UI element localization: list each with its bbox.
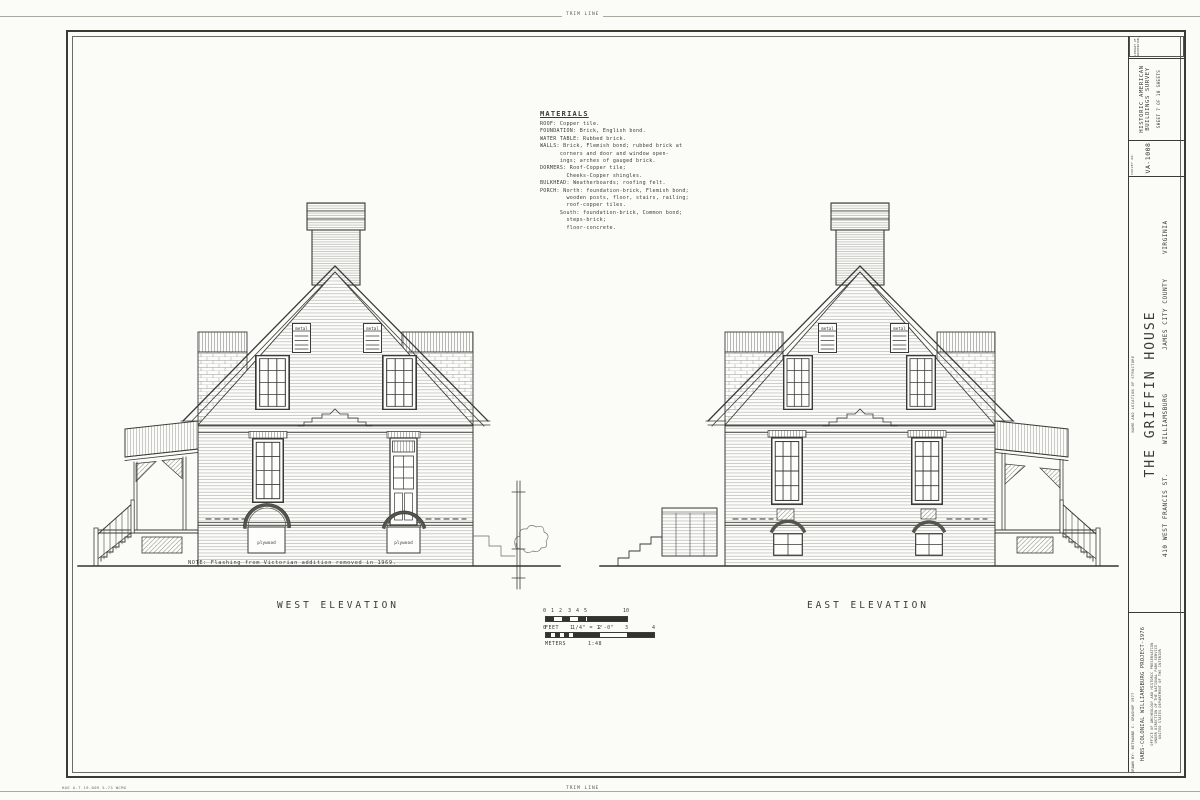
materials-line: Cheeks-Copper shingles. [540, 173, 690, 180]
east-main-wall [725, 425, 995, 566]
west-lintel-window [249, 432, 287, 439]
east-window-first-left [772, 438, 803, 504]
east-wall-vent-left [777, 509, 794, 520]
survey-no-band: SURVEY NO. VA-1008 [1129, 140, 1184, 176]
west-plywood-label-left: plywood [257, 540, 276, 546]
materials-line: roof-copper tiles. [540, 202, 690, 209]
materials-title: MATERIALS [540, 110, 690, 118]
east-bulkhead [618, 508, 717, 566]
meters-scale-ratio: 1:48 [588, 641, 602, 647]
credits-band: DRAWN BY: BETHANNE C. GRASHOF 1977 HABS-… [1129, 612, 1184, 776]
materials-line: WATER TABLE: Rubbed brick. [540, 136, 690, 143]
west-elevation-label: WEST ELEVATION [258, 600, 418, 611]
office-line3: UNITED STATES DEPARTMENT OF THE INTERIOR [1158, 612, 1162, 776]
materials-line: corners and door and window open- [540, 151, 690, 158]
materials-line: steps-brick; [540, 217, 690, 224]
west-elevation-drawing: metal metal plywood [78, 203, 560, 589]
feet-tick: 0 [543, 608, 546, 614]
feet-tick: 3 [568, 608, 571, 614]
name-caption: NAME AND LOCATION OF STRUCTURE [1131, 176, 1135, 612]
materials-line: ings; arches of gauged brick. [540, 158, 690, 165]
name-location-band: NAME AND LOCATION OF STRUCTURE THE GRIFF… [1129, 176, 1184, 612]
feet-tick: 2 [559, 608, 562, 614]
meters-tick: 0 [543, 625, 546, 631]
feet-scale-bar [545, 616, 628, 622]
meters-tick: 2 [598, 625, 601, 631]
library-box: LIBRARY OF CONGRESS WASHINGTON, D.C. [1129, 36, 1184, 57]
survey-name-line2: BUILDINGS SURVEY [1145, 58, 1151, 140]
survey-name-band: HISTORIC AMERICAN BUILDINGS SURVEY SHEET… [1129, 58, 1184, 140]
materials-line: floor-concrete. [540, 225, 690, 232]
library-line2: WASHINGTON, D.C. [1137, 37, 1140, 56]
east-window-first-right [912, 438, 943, 504]
east-lintel-left [768, 431, 806, 438]
feet-scale-label: FEET [545, 625, 559, 631]
meters-tick: 4 [652, 625, 655, 631]
west-window-first [253, 439, 284, 502]
east-elevation-drawing: metal metal [600, 203, 1118, 566]
meters-scale-label: METERS [545, 641, 566, 647]
structure-city: WILLIAMSBURG [1162, 393, 1169, 444]
structure-address: 410 WEST FRANCIS ST. [1162, 473, 1169, 557]
survey-no-label: SURVEY NO. [1130, 140, 1134, 175]
materials-list: MATERIALS ROOF: Copper tile. FOUNDATION:… [540, 110, 690, 232]
structure-name: THE GRIFFIN HOUSE [1143, 176, 1158, 612]
west-window-second-right [383, 356, 416, 410]
materials-line: ROOF: Copper tile. [540, 121, 690, 128]
feet-tick: 4 [576, 608, 579, 614]
habs-drawing-sheet: TRIM LINE TRIM LINE HAE O-T 19-009 5-73 … [0, 0, 1200, 800]
materials-line: WALLS: Brick, Flemish bond; rubbed brick… [540, 143, 690, 150]
east-window-second-left [784, 356, 813, 410]
west-plywood-label-right: plywood [394, 540, 413, 546]
materials-line: wooden posts, floor, stairs, railing; [540, 195, 690, 202]
drawn-by: DRAWN BY: BETHANNE C. GRASHOF 1977 [1131, 612, 1135, 773]
west-window-second-left [256, 356, 289, 410]
project-name: HABS-COLONIAL WILLIAMSBURG PROJECT-1976 [1140, 612, 1146, 776]
west-vent-label-right: metal [366, 326, 379, 331]
east-vent-label-right: metal [893, 326, 906, 331]
west-side-steps [473, 536, 515, 556]
structure-state: VIRGINIA [1162, 220, 1169, 254]
meters-scale-bar [545, 632, 655, 638]
structure-county: JAMES CITY COUNTY [1162, 278, 1169, 350]
materials-line: DORMERS: Roof-Copper tile; [540, 165, 690, 172]
feet-tick: 10 [623, 608, 629, 614]
east-porch [995, 421, 1100, 566]
materials-line: BULKHEAD: Weatherboards; roofing felt. [540, 180, 690, 187]
west-vent-label-left: metal [295, 326, 308, 331]
feet-tick: 1 [551, 608, 554, 614]
east-elevation-label: EAST ELEVATION [788, 600, 948, 611]
survey-no-value: VA-1008 [1144, 140, 1152, 176]
meters-tick: 1 [570, 625, 573, 631]
east-window-second-right [907, 356, 936, 410]
materials-line: PORCH: North: foundation-brick, Flemish … [540, 188, 690, 195]
west-section-marker [512, 481, 525, 589]
meters-tick: 3 [625, 625, 628, 631]
feet-scale-ratio: 1/4" = 1'-0" [572, 625, 614, 631]
east-lintel-right [908, 431, 946, 438]
west-note: NOTE: Flashing from Victorian addition r… [188, 560, 396, 566]
materials-line: FOUNDATION: Brick, English bond. [540, 128, 690, 135]
sheet-info: SHEET 7 OF 10 SHEETS [1156, 58, 1161, 140]
east-vent-label-left: metal [821, 326, 834, 331]
west-main-wall [198, 425, 473, 566]
materials-line: South: foundation-brick, Common bond; [540, 210, 690, 217]
east-wall-vent-right [921, 509, 936, 519]
west-porch [94, 421, 198, 566]
feet-tick: 5 [584, 608, 587, 614]
